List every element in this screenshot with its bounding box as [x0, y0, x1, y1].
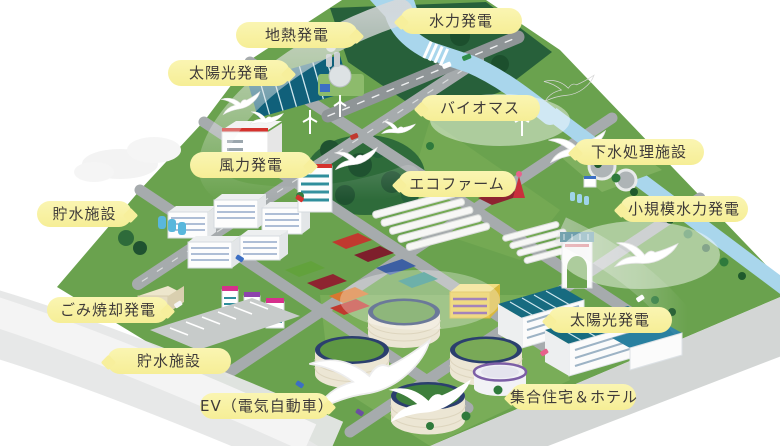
label-eco-farm: エコファーム: [398, 171, 516, 197]
label-water-storage-top: 貯水施設: [37, 201, 132, 227]
label-solar-power-right: 太陽光発電: [548, 307, 672, 333]
label-geothermal-power: 地熱発電: [236, 22, 358, 48]
label-small-hydro-power: 小規模水力発電: [620, 196, 748, 222]
label-sewage-treatment: 下水処理施設: [574, 139, 704, 165]
label-wind-power: 風力発電: [190, 152, 312, 178]
eco-town-diagram: 水力発電 地熱発電 太陽光発電 バイオマス 下水処理施設 風力発電 エコファーム…: [0, 0, 780, 446]
label-ev-car: EV（電気自動車）: [200, 393, 330, 419]
label-water-storage-bottom: 貯水施設: [107, 348, 231, 374]
label-solar-power-top: 太陽光発電: [168, 60, 290, 86]
label-biomass: バイオマス: [420, 95, 540, 121]
label-hydro-power: 水力発電: [400, 8, 522, 34]
label-waste-incineration: ごみ焼却発電: [47, 297, 169, 323]
label-housing-hotel: 集合住宅＆ホテル: [510, 384, 636, 410]
